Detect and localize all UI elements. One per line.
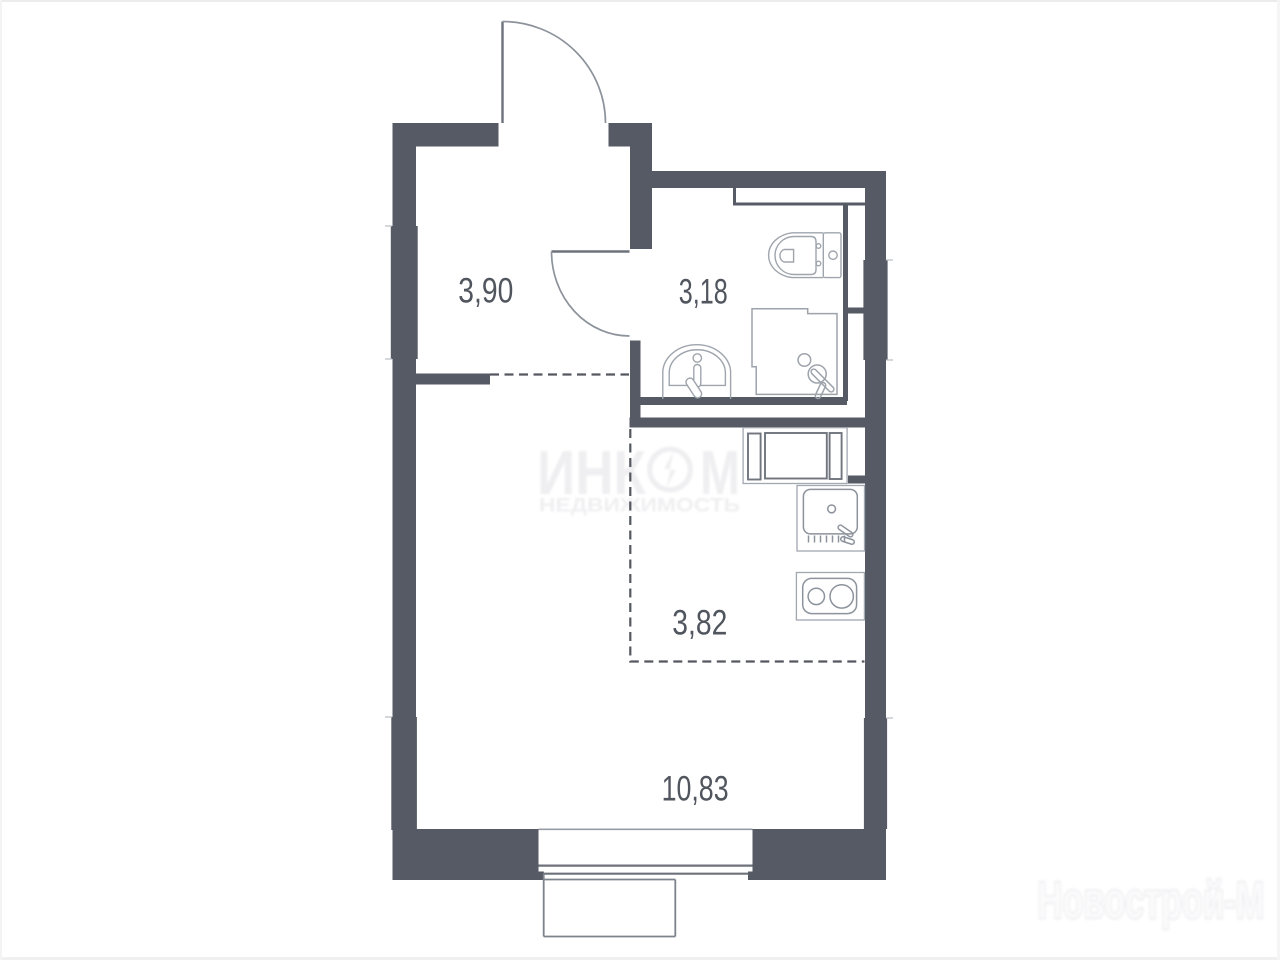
svg-text:3,90: 3,90 xyxy=(458,271,513,311)
svg-text:Новострой-М: Новострой-М xyxy=(1038,872,1265,930)
svg-text:3,82: 3,82 xyxy=(672,603,727,643)
svg-text:3,18: 3,18 xyxy=(679,272,728,312)
svg-text:НЕДВИЖИМОСТЬ: НЕДВИЖИМОСТЬ xyxy=(539,495,740,517)
svg-text:10,83: 10,83 xyxy=(662,769,729,809)
